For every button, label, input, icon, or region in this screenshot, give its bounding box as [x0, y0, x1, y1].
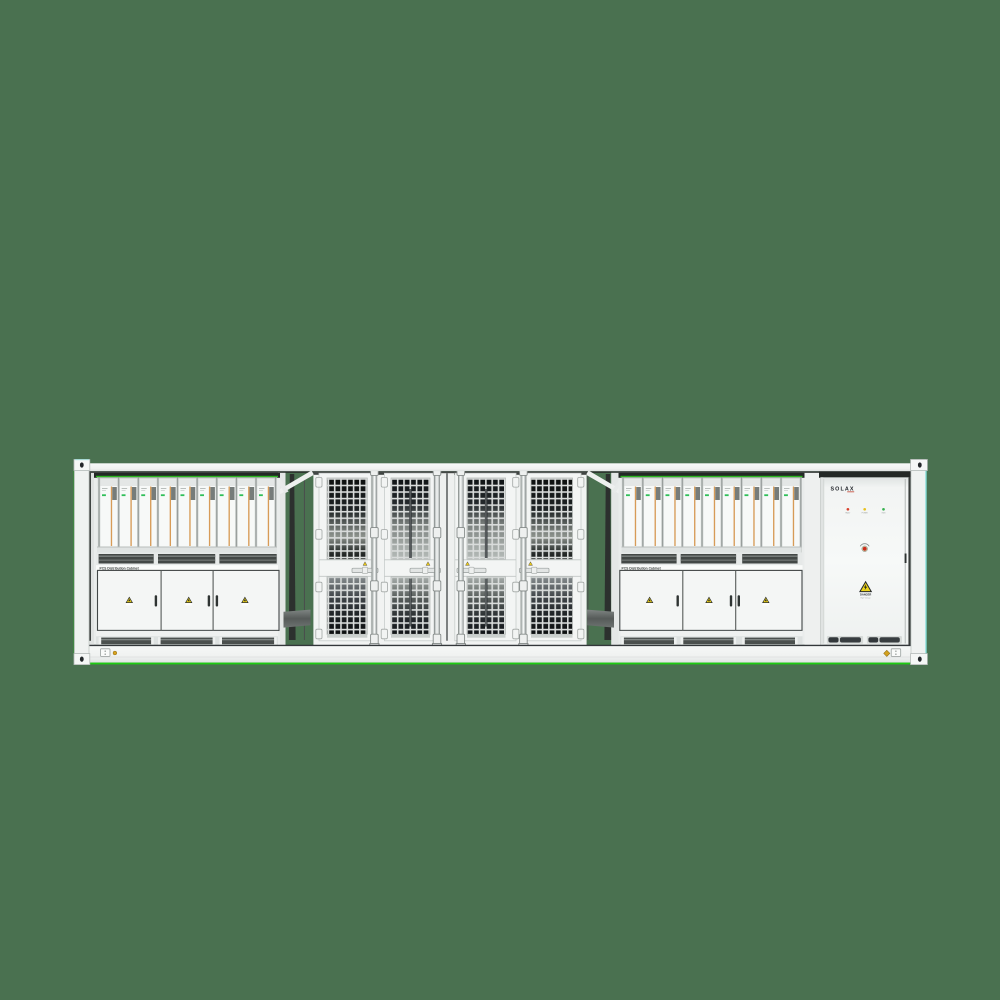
svg-text:PCS Distribution Cabinet: PCS Distribution Cabinet: [622, 566, 662, 570]
svg-text:PCS Distribution Cabinet: PCS Distribution Cabinet: [100, 566, 140, 570]
svg-text:High Voltage: High Voltage: [860, 597, 870, 600]
svg-text:POWER: POWER: [862, 513, 869, 515]
svg-text:DANGER: DANGER: [860, 593, 871, 597]
